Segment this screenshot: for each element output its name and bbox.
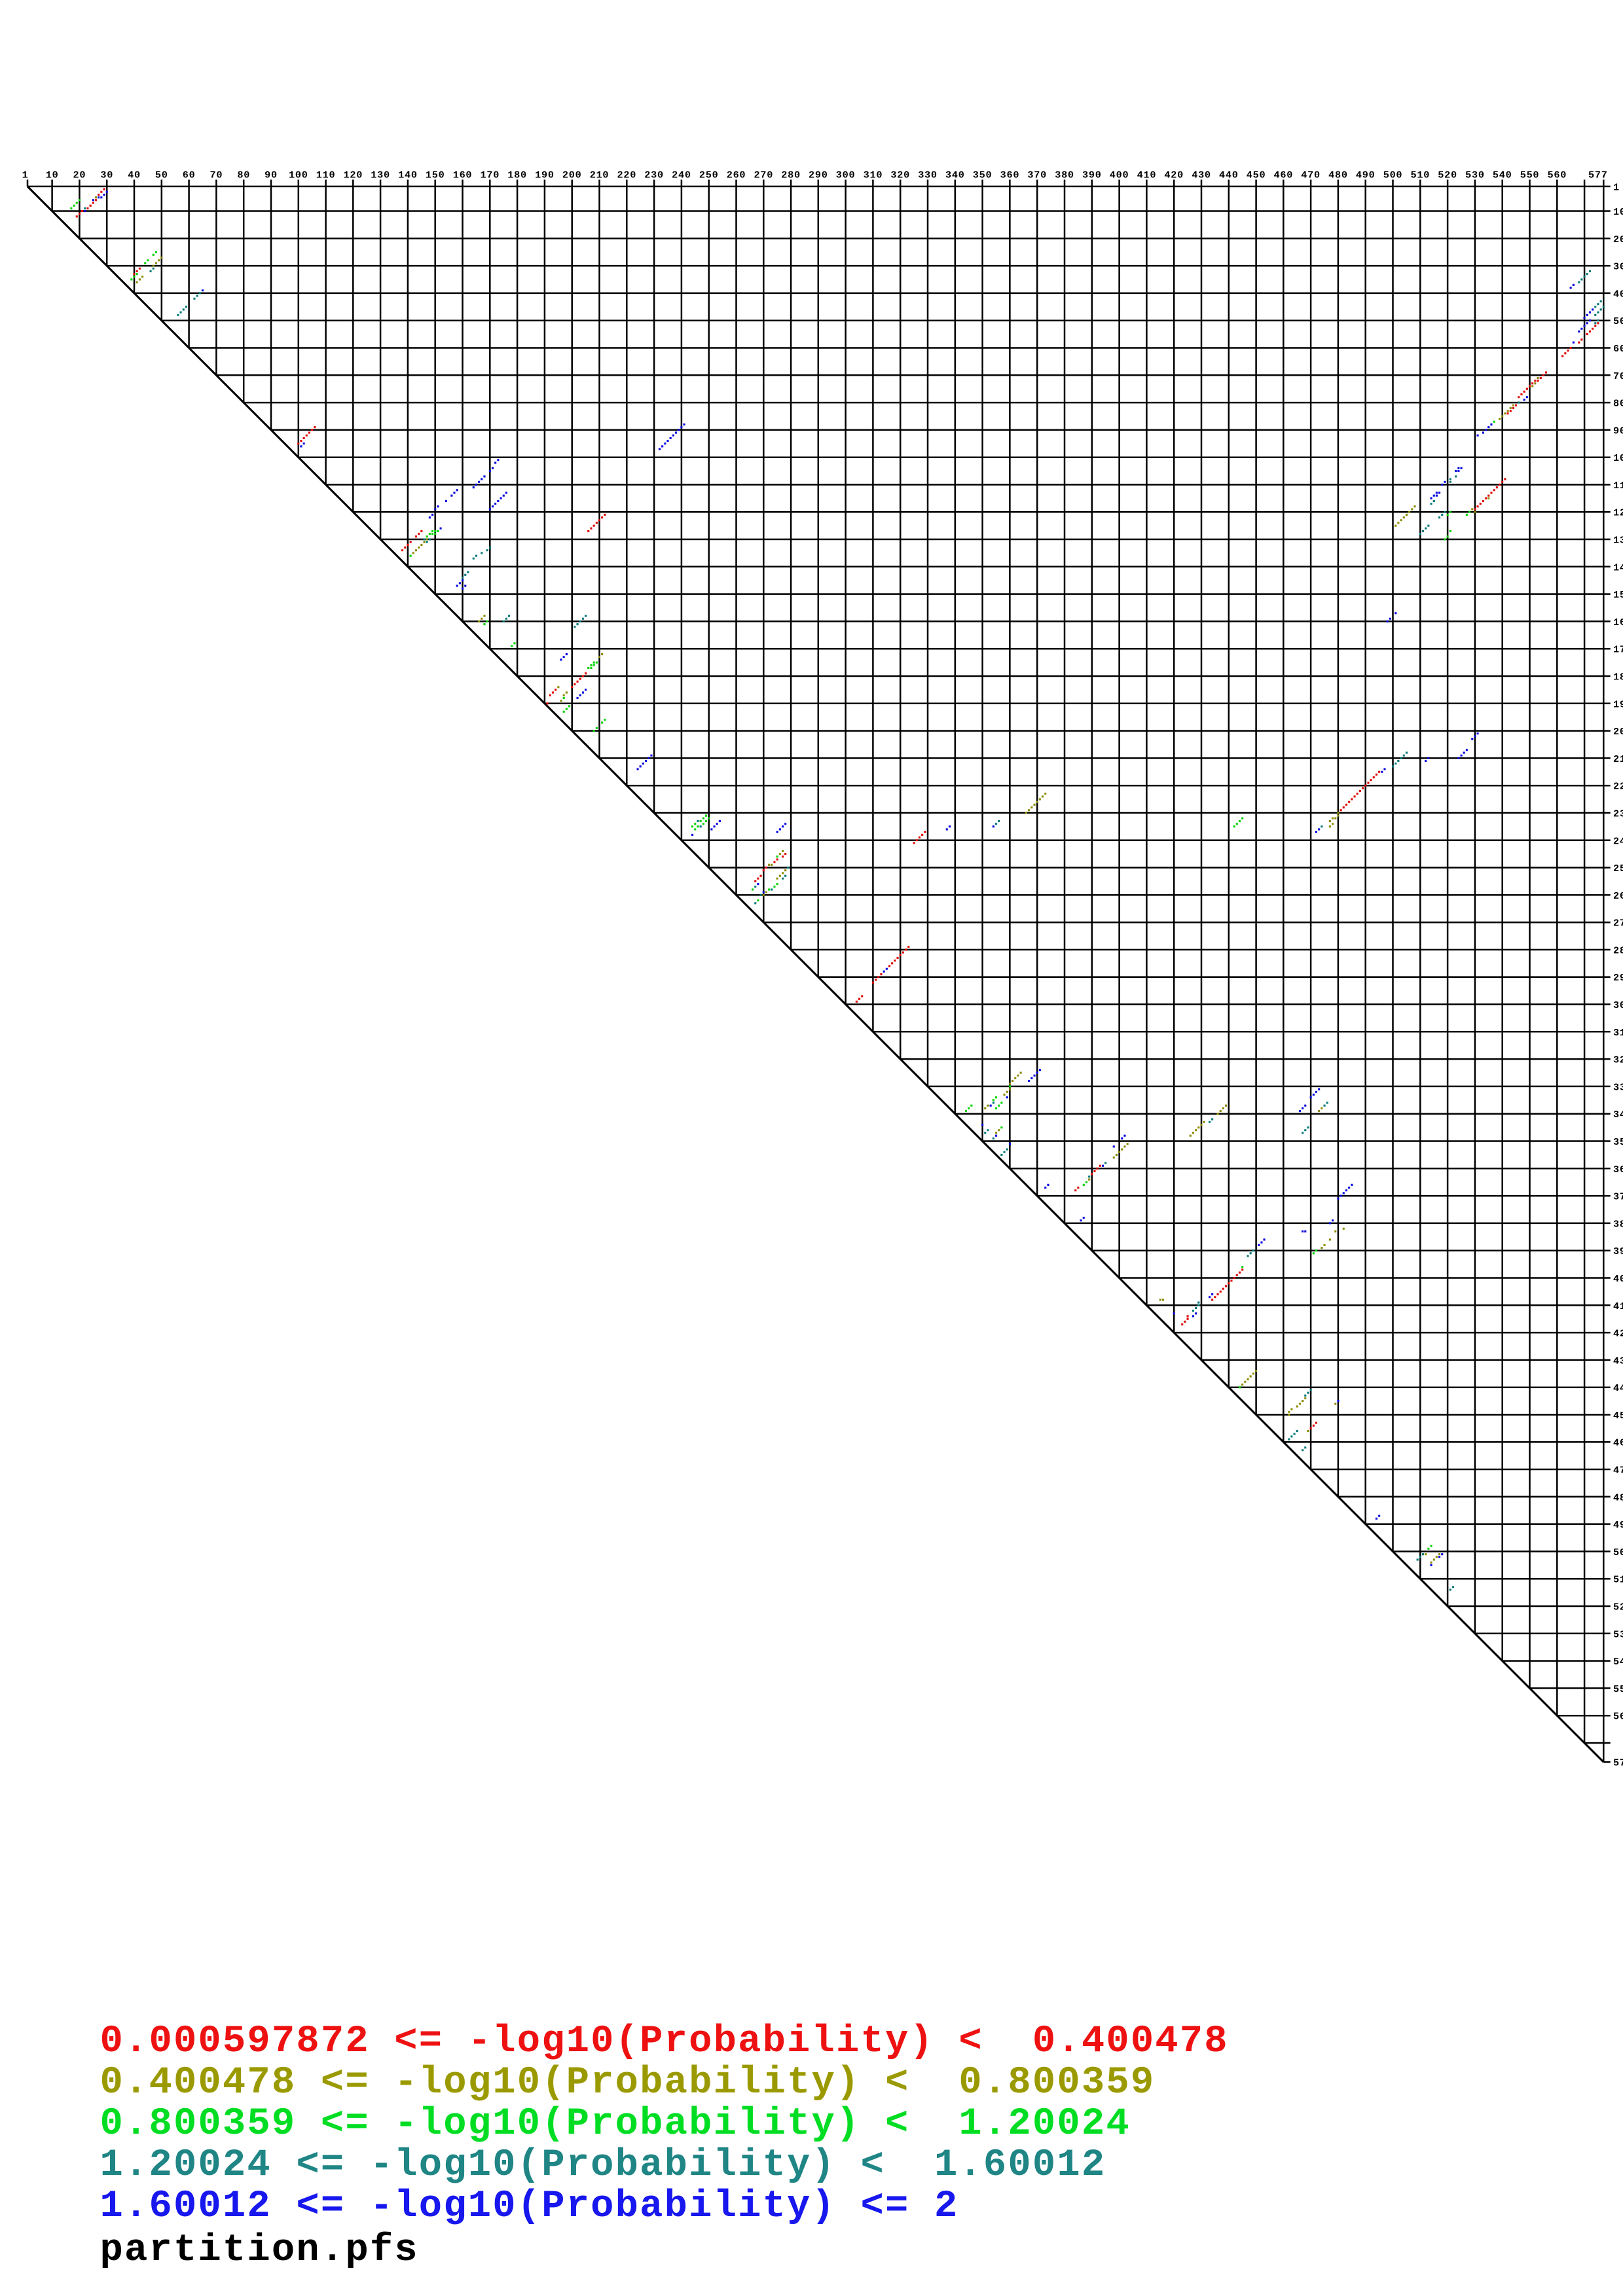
svg-text:480: 480 — [1328, 170, 1348, 181]
svg-text:500: 500 — [1613, 1547, 1623, 1558]
svg-text:100: 100 — [1613, 452, 1623, 464]
svg-text:240: 240 — [672, 170, 691, 181]
svg-text:50: 50 — [1613, 315, 1623, 327]
svg-text:200: 200 — [562, 170, 582, 181]
svg-text:440: 440 — [1219, 170, 1239, 181]
svg-text:450: 450 — [1247, 170, 1266, 181]
svg-text:560: 560 — [1548, 170, 1567, 181]
svg-text:577: 577 — [1613, 1757, 1623, 1769]
svg-text:20: 20 — [1613, 234, 1623, 245]
svg-text:340: 340 — [945, 170, 965, 181]
svg-text:250: 250 — [1613, 863, 1623, 874]
svg-text:220: 220 — [617, 170, 637, 181]
svg-text:210: 210 — [590, 170, 610, 181]
svg-text:280: 280 — [1613, 945, 1623, 957]
svg-text:160: 160 — [1613, 617, 1623, 628]
svg-text:140: 140 — [1613, 562, 1623, 573]
svg-text:577: 577 — [1588, 170, 1608, 181]
svg-text:0.400478 <= -log10(Probability: 0.400478 <= -log10(Probability) < 0.8003… — [100, 2060, 1156, 2104]
svg-text:430: 430 — [1192, 170, 1211, 181]
svg-text:190: 190 — [535, 170, 555, 181]
svg-text:360: 360 — [1613, 1164, 1623, 1175]
svg-text:530: 530 — [1465, 170, 1485, 181]
svg-text:130: 130 — [1613, 535, 1623, 547]
svg-text:320: 320 — [890, 170, 910, 181]
svg-text:230: 230 — [644, 170, 664, 181]
svg-text:390: 390 — [1082, 170, 1102, 181]
svg-text:400: 400 — [1110, 170, 1129, 181]
svg-text:30: 30 — [1613, 261, 1623, 273]
svg-text:110: 110 — [316, 170, 336, 181]
svg-text:400: 400 — [1613, 1273, 1623, 1285]
svg-text:220: 220 — [1613, 781, 1623, 793]
svg-text:80: 80 — [1613, 398, 1623, 410]
svg-text:180: 180 — [507, 170, 527, 181]
svg-text:1: 1 — [1613, 181, 1620, 193]
svg-text:partition.pfs: partition.pfs — [100, 2228, 419, 2272]
svg-text:260: 260 — [727, 170, 746, 181]
svg-text:0.000597872 <= -log10(Probabil: 0.000597872 <= -log10(Probability) < 0.4… — [100, 2019, 1229, 2063]
svg-text:80: 80 — [237, 170, 250, 181]
svg-text:60: 60 — [183, 170, 196, 181]
svg-text:10: 10 — [1613, 206, 1623, 218]
svg-text:210: 210 — [1613, 753, 1623, 765]
svg-text:120: 120 — [1613, 507, 1623, 519]
svg-text:130: 130 — [371, 170, 390, 181]
svg-text:170: 170 — [1613, 644, 1623, 656]
svg-text:30: 30 — [100, 170, 113, 181]
svg-text:470: 470 — [1613, 1465, 1623, 1477]
svg-text:450: 450 — [1613, 1410, 1623, 1422]
svg-text:160: 160 — [453, 170, 473, 181]
svg-text:1: 1 — [22, 170, 29, 181]
svg-text:380: 380 — [1613, 1218, 1623, 1230]
svg-text:140: 140 — [398, 170, 418, 181]
svg-text:0.800359 <= -log10(Probability: 0.800359 <= -log10(Probability) < 1.2002… — [100, 2102, 1131, 2145]
svg-text:300: 300 — [1613, 999, 1623, 1011]
svg-text:350: 350 — [1613, 1136, 1623, 1148]
svg-text:340: 340 — [1613, 1109, 1623, 1121]
svg-text:530: 530 — [1613, 1628, 1623, 1640]
svg-text:20: 20 — [73, 170, 86, 181]
svg-text:300: 300 — [836, 170, 856, 181]
svg-text:360: 360 — [1000, 170, 1020, 181]
svg-text:350: 350 — [973, 170, 993, 181]
svg-text:170: 170 — [481, 170, 500, 181]
svg-text:490: 490 — [1356, 170, 1376, 181]
svg-text:150: 150 — [426, 170, 445, 181]
svg-text:540: 540 — [1613, 1656, 1623, 1668]
svg-text:480: 480 — [1613, 1492, 1623, 1503]
svg-text:110: 110 — [1613, 480, 1623, 492]
svg-text:470: 470 — [1301, 170, 1321, 181]
svg-text:410: 410 — [1613, 1300, 1623, 1312]
svg-text:460: 460 — [1274, 170, 1294, 181]
svg-text:180: 180 — [1613, 672, 1623, 683]
svg-text:200: 200 — [1613, 726, 1623, 738]
svg-text:550: 550 — [1613, 1683, 1623, 1695]
svg-text:280: 280 — [781, 170, 801, 181]
svg-text:510: 510 — [1613, 1574, 1623, 1586]
svg-text:10: 10 — [46, 170, 59, 181]
svg-text:1.20024 <= -log10(Probability): 1.20024 <= -log10(Probability) < 1.60012 — [100, 2143, 1106, 2187]
svg-text:490: 490 — [1613, 1519, 1623, 1531]
svg-text:260: 260 — [1613, 890, 1623, 902]
svg-text:380: 380 — [1055, 170, 1074, 181]
svg-text:520: 520 — [1438, 170, 1457, 181]
svg-text:540: 540 — [1493, 170, 1512, 181]
svg-text:560: 560 — [1613, 1711, 1623, 1723]
svg-text:290: 290 — [1613, 972, 1623, 984]
svg-text:290: 290 — [809, 170, 828, 181]
svg-text:330: 330 — [1613, 1081, 1623, 1093]
svg-text:40: 40 — [128, 170, 141, 181]
svg-text:520: 520 — [1613, 1602, 1623, 1613]
svg-text:310: 310 — [864, 170, 883, 181]
svg-text:90: 90 — [264, 170, 278, 181]
svg-text:70: 70 — [210, 170, 223, 181]
svg-text:1.60012 <= -log10(Probability): 1.60012 <= -log10(Probability) <= 2 — [100, 2184, 959, 2228]
svg-text:270: 270 — [754, 170, 774, 181]
svg-text:430: 430 — [1613, 1355, 1623, 1367]
svg-text:320: 320 — [1613, 1054, 1623, 1066]
svg-text:190: 190 — [1613, 698, 1623, 710]
svg-text:230: 230 — [1613, 808, 1623, 820]
svg-text:250: 250 — [699, 170, 719, 181]
svg-text:370: 370 — [1027, 170, 1047, 181]
svg-text:240: 240 — [1613, 835, 1623, 847]
svg-text:70: 70 — [1613, 370, 1623, 382]
svg-text:410: 410 — [1137, 170, 1157, 181]
svg-text:150: 150 — [1613, 589, 1623, 601]
svg-text:90: 90 — [1613, 425, 1623, 437]
svg-text:510: 510 — [1411, 170, 1431, 181]
svg-text:500: 500 — [1383, 170, 1403, 181]
svg-text:420: 420 — [1613, 1328, 1623, 1340]
svg-text:270: 270 — [1613, 918, 1623, 929]
svg-text:420: 420 — [1164, 170, 1184, 181]
svg-text:330: 330 — [918, 170, 938, 181]
svg-text:310: 310 — [1613, 1027, 1623, 1039]
svg-text:370: 370 — [1613, 1191, 1623, 1203]
svg-text:100: 100 — [289, 170, 308, 181]
svg-text:60: 60 — [1613, 343, 1623, 355]
svg-text:120: 120 — [344, 170, 363, 181]
svg-text:40: 40 — [1613, 288, 1623, 300]
svg-text:50: 50 — [155, 170, 168, 181]
svg-text:460: 460 — [1613, 1437, 1623, 1449]
svg-text:440: 440 — [1613, 1382, 1623, 1394]
svg-text:550: 550 — [1520, 170, 1540, 181]
svg-text:390: 390 — [1613, 1246, 1623, 1257]
